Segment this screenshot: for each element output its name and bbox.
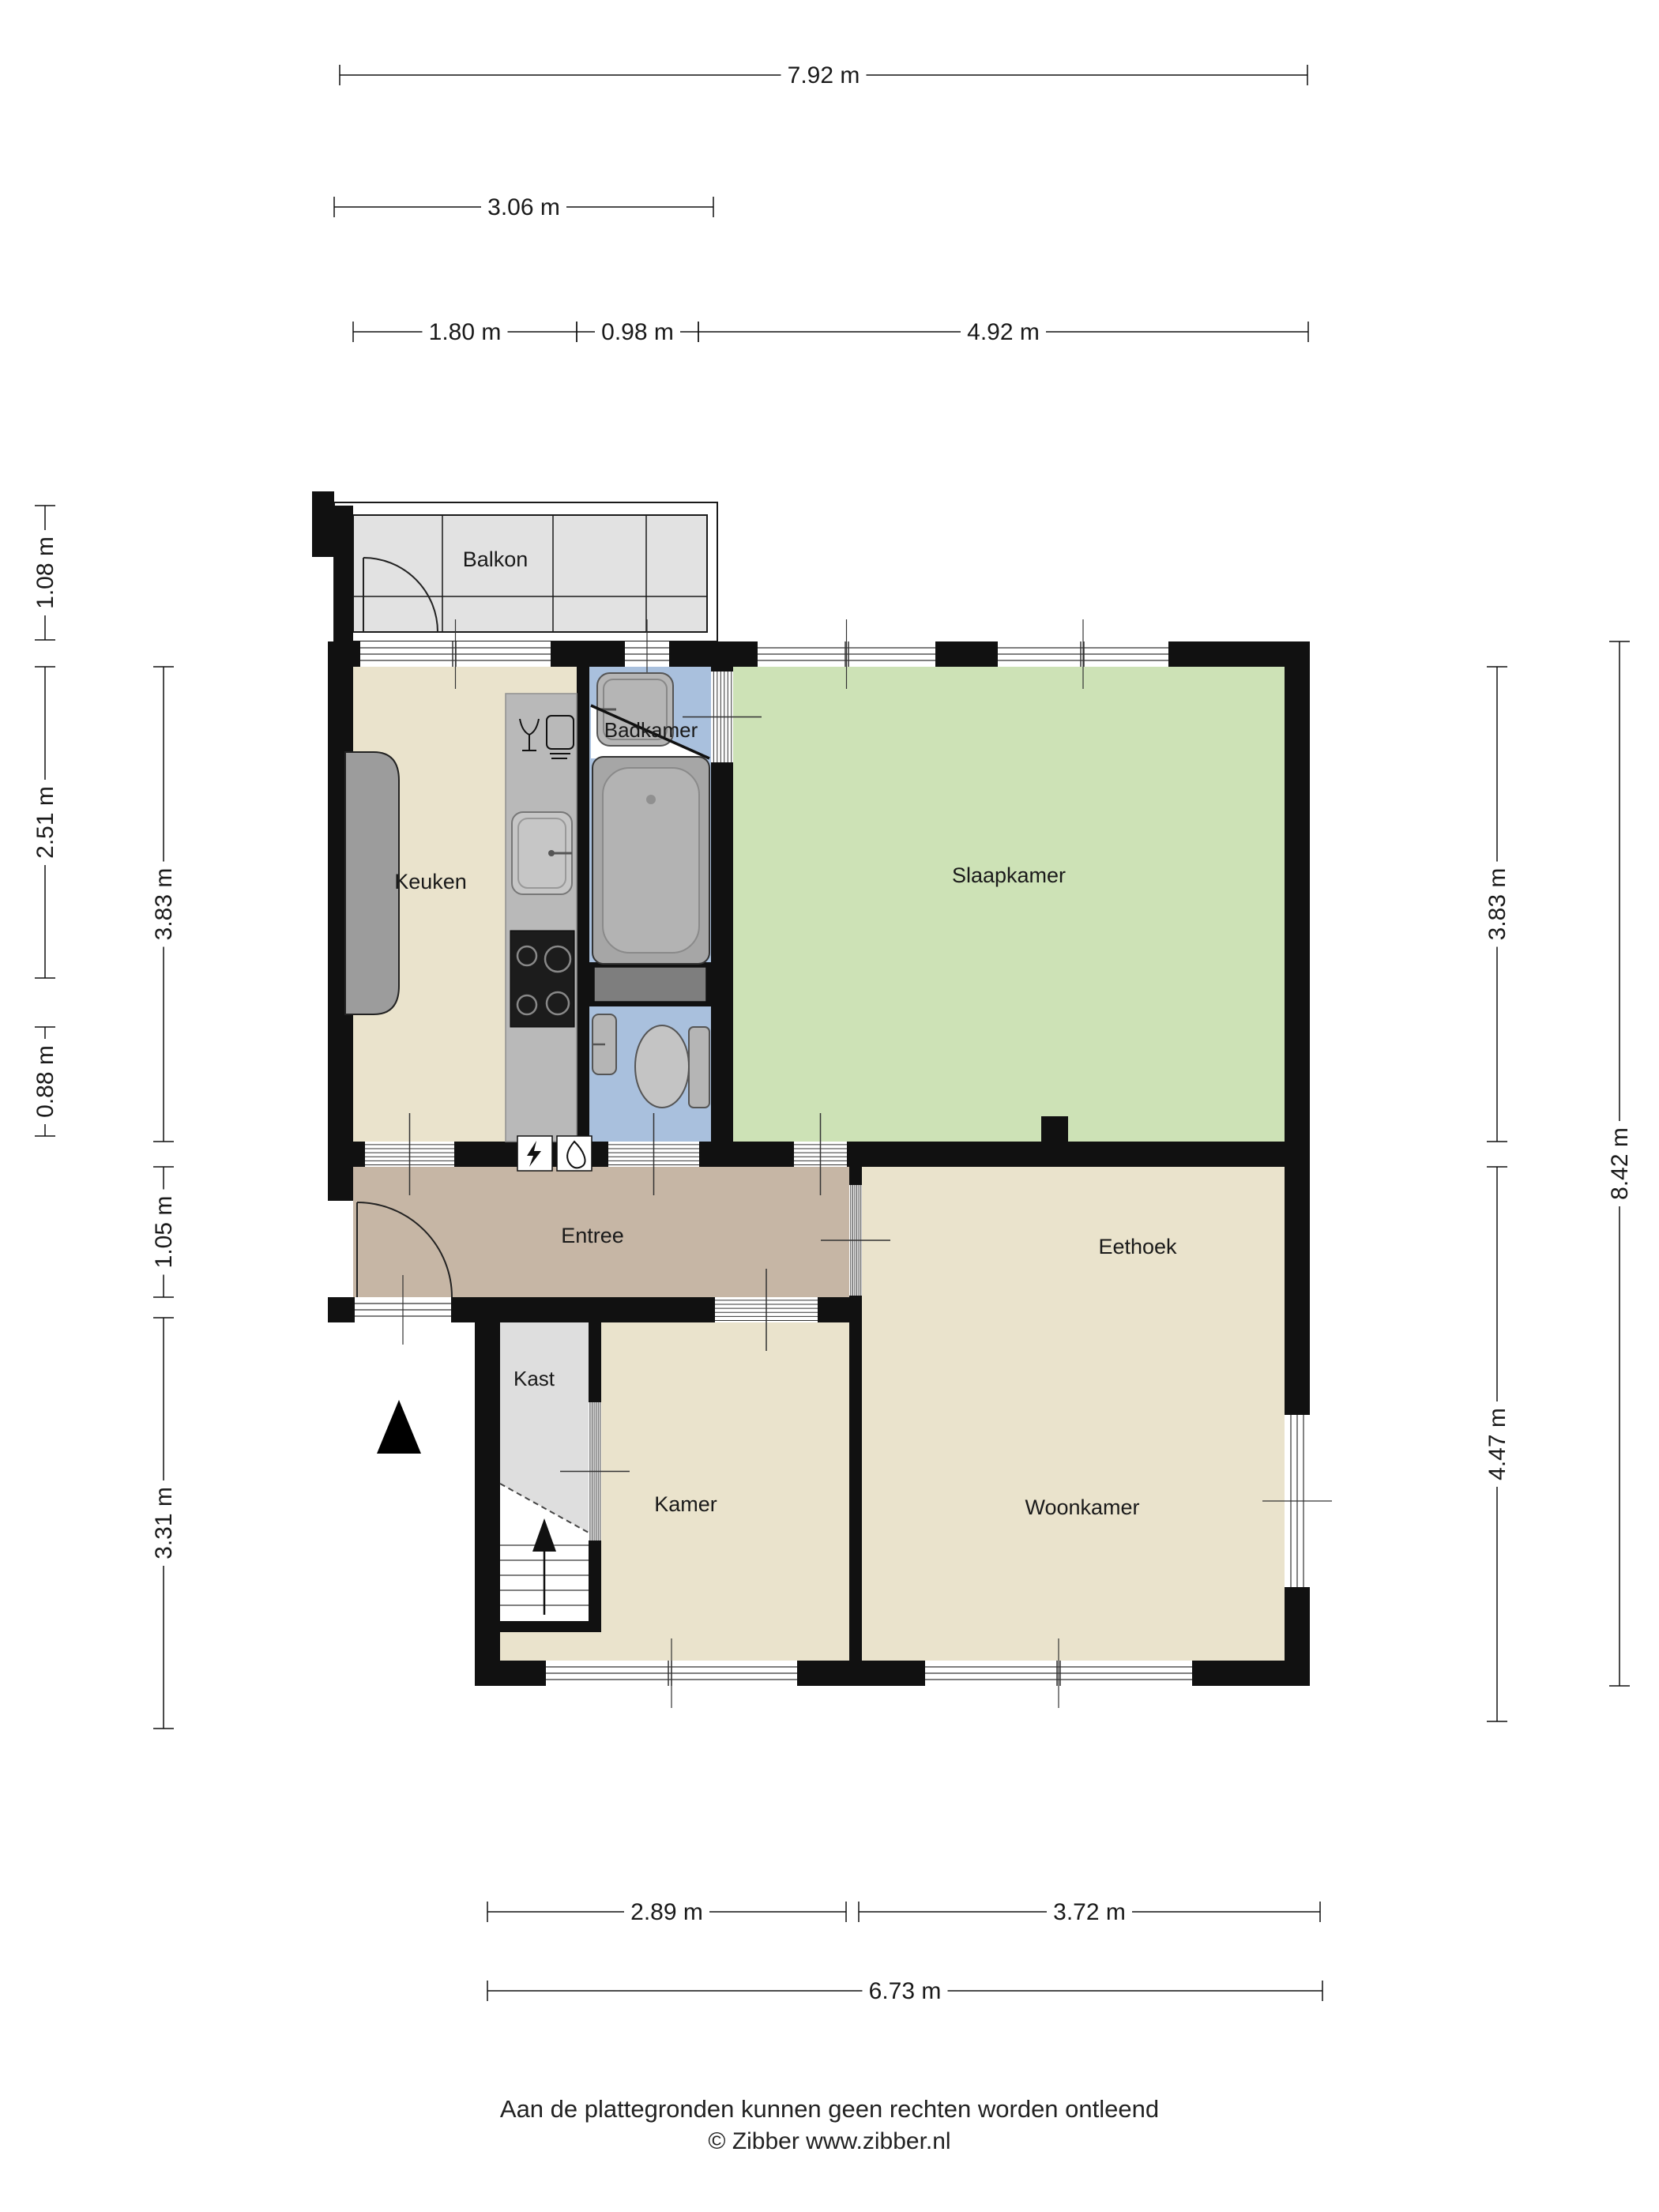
dim-098-label: 0.98 m	[601, 319, 674, 345]
dim-251-label: 2.51 m	[32, 786, 58, 859]
label-eethoek: Eethoek	[1098, 1235, 1177, 1258]
dim-088-label: 0.88 m	[32, 1045, 58, 1118]
dim-492-label: 4.92 m	[967, 319, 1040, 345]
label-slaapkamer: Slaapkamer	[952, 863, 1066, 887]
wall-stub-topleft	[312, 491, 334, 557]
floorplan-svg: BalkonBadkamerKeukenSlaapkamerEntreeKast…	[0, 0, 1659, 2212]
label-badkamer: Badkamer	[604, 718, 698, 742]
label-woonkamer: Woonkamer	[1025, 1495, 1139, 1519]
entry-arrow	[377, 1400, 421, 1454]
kitchen-counter	[506, 694, 577, 1142]
dim-105-label: 1.05 m	[151, 1196, 177, 1269]
shelf	[594, 967, 706, 1002]
label-entree: Entree	[561, 1224, 624, 1247]
dim-372-label: 3.72 m	[1053, 1899, 1126, 1925]
footer-copyright: © Zibber www.zibber.nl	[0, 2128, 1659, 2155]
door-entry-opening	[328, 1201, 353, 1297]
label-kast: Kast	[513, 1367, 555, 1390]
room-woonkamer	[862, 1167, 1285, 1661]
label-keuken: Keuken	[394, 870, 467, 893]
floorplan-canvas: BalkonBadkamerKeukenSlaapkamerEntreeKast…	[0, 0, 1659, 2212]
wall-keuken-badkamer	[577, 667, 589, 1142]
toilet-bowl	[635, 1025, 689, 1108]
bathtub-drain	[646, 795, 656, 804]
dim-331-label: 3.31 m	[151, 1487, 177, 1559]
wall-lower-left	[475, 1297, 500, 1686]
dim-383-right-label: 3.83 m	[1484, 868, 1510, 941]
wall-slaapkamer-stub	[1041, 1116, 1068, 1142]
wall-stairs-bottom	[500, 1621, 601, 1632]
toilet-tank	[689, 1027, 709, 1108]
dim-673-label: 6.73 m	[869, 1978, 942, 2004]
dim-383-left-label: 3.83 m	[151, 868, 177, 941]
dim-180-label: 1.80 m	[429, 319, 502, 345]
dim-792-label: 7.92 m	[788, 62, 860, 88]
sink-tap-dot	[548, 850, 555, 856]
label-balkon: Balkon	[463, 547, 529, 571]
dim-447-label: 4.47 m	[1484, 1408, 1510, 1480]
dim-306-label: 3.06 m	[487, 194, 560, 220]
floorplan-page: BalkonBadkamerKeukenSlaapkamerEntreeKast…	[0, 0, 1659, 2212]
dim-842-label: 8.42 m	[1607, 1127, 1633, 1200]
kitchen-unit	[345, 752, 399, 1014]
label-kamer: Kamer	[654, 1492, 717, 1516]
wall-balcony-left	[334, 506, 353, 641]
room-slaapkamer	[733, 667, 1285, 1142]
dim-289-label: 2.89 m	[630, 1899, 703, 1925]
footer-disclaimer: Aan de plattegronden kunnen geen rechten…	[0, 2095, 1659, 2124]
balcony-floor	[353, 515, 707, 632]
dim-108-label: 1.08 m	[32, 536, 58, 609]
